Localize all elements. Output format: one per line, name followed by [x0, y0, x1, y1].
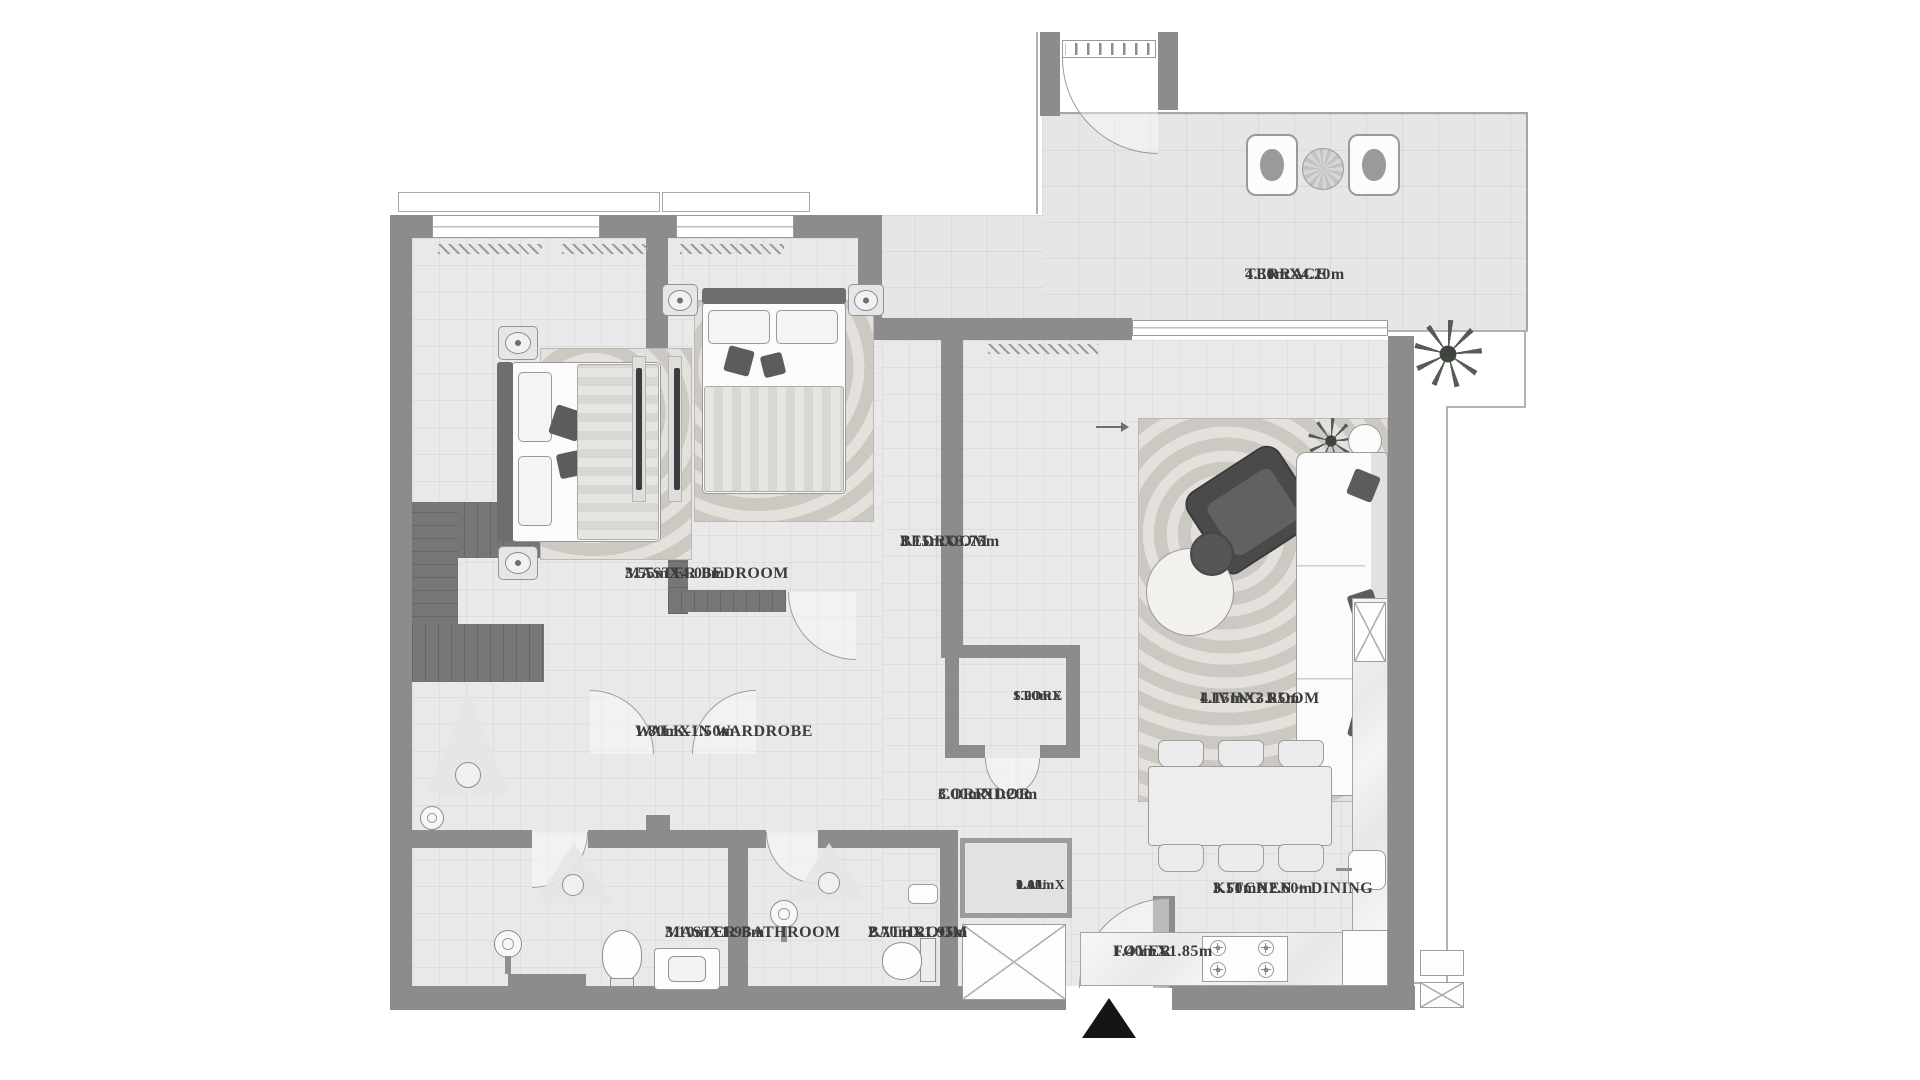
room-dims: 3.50mX2.60m [1213, 880, 1313, 898]
balcony-outline [1524, 332, 1526, 408]
dining-chair [1218, 740, 1264, 768]
bathroom-toilet [882, 942, 922, 980]
room-dims: 3.55mX4.00m [625, 565, 725, 583]
terrace-plant [1414, 320, 1482, 388]
master-nightstand-top [498, 326, 538, 360]
wall-store-bottom-b [1040, 745, 1080, 758]
bedroom-bed-blanket [704, 386, 844, 492]
wall-exterior-right [1388, 336, 1414, 986]
wall-masterbath-north-b [588, 830, 646, 848]
stove-burner-icon [1210, 962, 1226, 978]
master-bed-headboard [497, 362, 513, 542]
window-sill-master [398, 192, 660, 212]
floor-plan: TERRACE 4.30mX4.20m MASTER BEDROOM 3.55m… [0, 0, 1920, 1080]
vestibule-window [1062, 40, 1156, 58]
wall-bathroom-north-a [670, 830, 766, 848]
wall-bath-divider [728, 848, 748, 986]
dining-chair [1158, 844, 1204, 872]
master-bath-pedestal-sink [494, 930, 522, 958]
wall-masterbath-block [508, 974, 586, 1004]
window-living-terrace [1132, 320, 1388, 336]
master-bath-basin [668, 956, 706, 982]
master-nightstand-bottom [498, 546, 538, 580]
wall-exterior-left [390, 215, 412, 1010]
dining-chair [1218, 844, 1264, 872]
wall-store-top [945, 645, 1080, 658]
coffee-table-small [1190, 532, 1234, 576]
tv-master-bedroom [636, 368, 642, 490]
bathroom-shower-head [818, 872, 840, 894]
curtain-hatch [562, 244, 648, 254]
bedroom-closet-bottom [668, 590, 786, 612]
bathroom-toilet-tank [920, 938, 936, 982]
master-bath-sink-stem [505, 956, 511, 974]
stove-burner-icon [1258, 962, 1274, 978]
bedroom-nightstand-left [662, 284, 698, 316]
tv-bedroom [674, 368, 680, 490]
wall-masterbath-north-a [412, 830, 532, 848]
master-bed-pillow [518, 456, 552, 526]
room-dims: 3.00mX1.20m [938, 786, 1038, 804]
bedroom-bed-pillow [776, 310, 838, 344]
wardrobe-cabinet-bottom [412, 624, 544, 682]
utility-box [1420, 950, 1464, 976]
kitchen-faucet [1336, 868, 1352, 871]
wall-store-bottom-a [945, 745, 985, 758]
window-master-bedroom [432, 215, 600, 238]
wall-under-terrace [882, 318, 1132, 340]
master-shower-head [562, 874, 584, 896]
balcony-outline [1448, 406, 1526, 408]
vestibule-outline [1036, 32, 1038, 214]
wall-exterior-bottom-east [1172, 986, 1415, 1010]
dining-chair [1278, 740, 1324, 768]
curtain-hatch [988, 344, 1098, 354]
bathroom-shelf-sink [908, 884, 938, 904]
master-bath-toilet [602, 930, 642, 982]
shower-tray [962, 924, 1066, 1000]
kitchen-shelf [1354, 602, 1386, 662]
bedroom-nightstand-right [848, 284, 884, 316]
balcony-outline [1446, 406, 1448, 984]
room-dims: 0.10m [1016, 877, 1055, 894]
wall-vestibule-right [1158, 32, 1178, 110]
terrace-chair [1246, 134, 1298, 196]
wall-corridor-column [646, 815, 670, 848]
kitchen-fridge [1342, 930, 1388, 986]
wall-bathroom-north-b [818, 830, 958, 848]
entry-triangle-icon [1082, 998, 1136, 1038]
room-dims: 3.15mX3.75m [900, 533, 1000, 551]
wall-bedroom-east [941, 340, 963, 658]
curtain-hatch [438, 244, 542, 254]
wall-vestibule-left [1040, 32, 1060, 116]
shower-room-head [455, 762, 481, 788]
stove-burner-icon [1258, 940, 1274, 956]
shower-room-sink [420, 806, 444, 830]
master-bed-pillow [518, 372, 552, 442]
room-dims: 2.70mX1.95m [868, 924, 968, 942]
room-dims: 4.15mX3.85m [1200, 690, 1300, 708]
right-arrow-icon [1096, 426, 1122, 428]
wall-store-left [945, 645, 959, 758]
curtain-hatch [680, 244, 784, 254]
master-bed-blanket [577, 364, 659, 540]
terrace-table [1302, 148, 1344, 190]
bedroom-bed-pillow [708, 310, 770, 344]
dining-chair [1158, 740, 1204, 768]
room-dims: 1.80mX1.50m [635, 723, 735, 741]
master-bath-toilet-base [610, 978, 634, 987]
terrace-chair [1348, 134, 1400, 196]
room-dims: 3.10mX1.95m [665, 924, 765, 942]
dining-table [1148, 766, 1332, 846]
room-dims: 1.00m [1013, 688, 1052, 705]
dining-chair [1278, 844, 1324, 872]
wall-store-right [1066, 645, 1080, 758]
window-bedroom [676, 215, 794, 238]
floor-terrace-alcove [877, 215, 1044, 332]
window-sill-bedroom [662, 192, 810, 212]
room-dims: 4.30mX4.20m [1245, 266, 1345, 284]
wall-bathroom-east [940, 838, 958, 986]
bedroom-bed-headboard [702, 288, 846, 304]
utility-box [1420, 982, 1464, 1008]
room-dims: 1.40mX1.85m [1113, 943, 1213, 961]
